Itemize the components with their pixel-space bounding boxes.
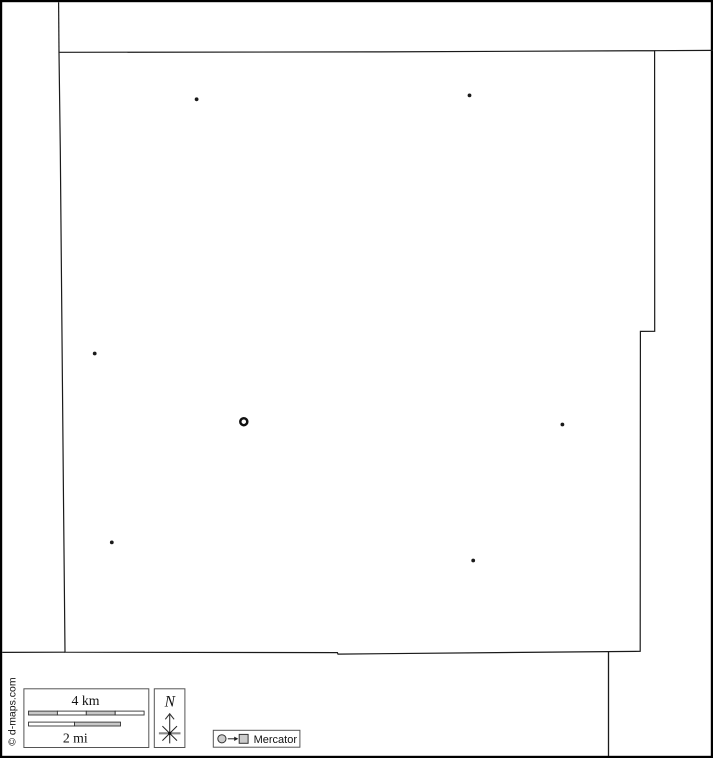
svg-text:© d-maps.com: © d-maps.com xyxy=(7,677,19,746)
svg-text:N: N xyxy=(164,694,177,711)
svg-text:4 km: 4 km xyxy=(72,693,100,708)
svg-text:Mercator: Mercator xyxy=(254,734,298,746)
svg-text:2 mi: 2 mi xyxy=(63,730,88,745)
